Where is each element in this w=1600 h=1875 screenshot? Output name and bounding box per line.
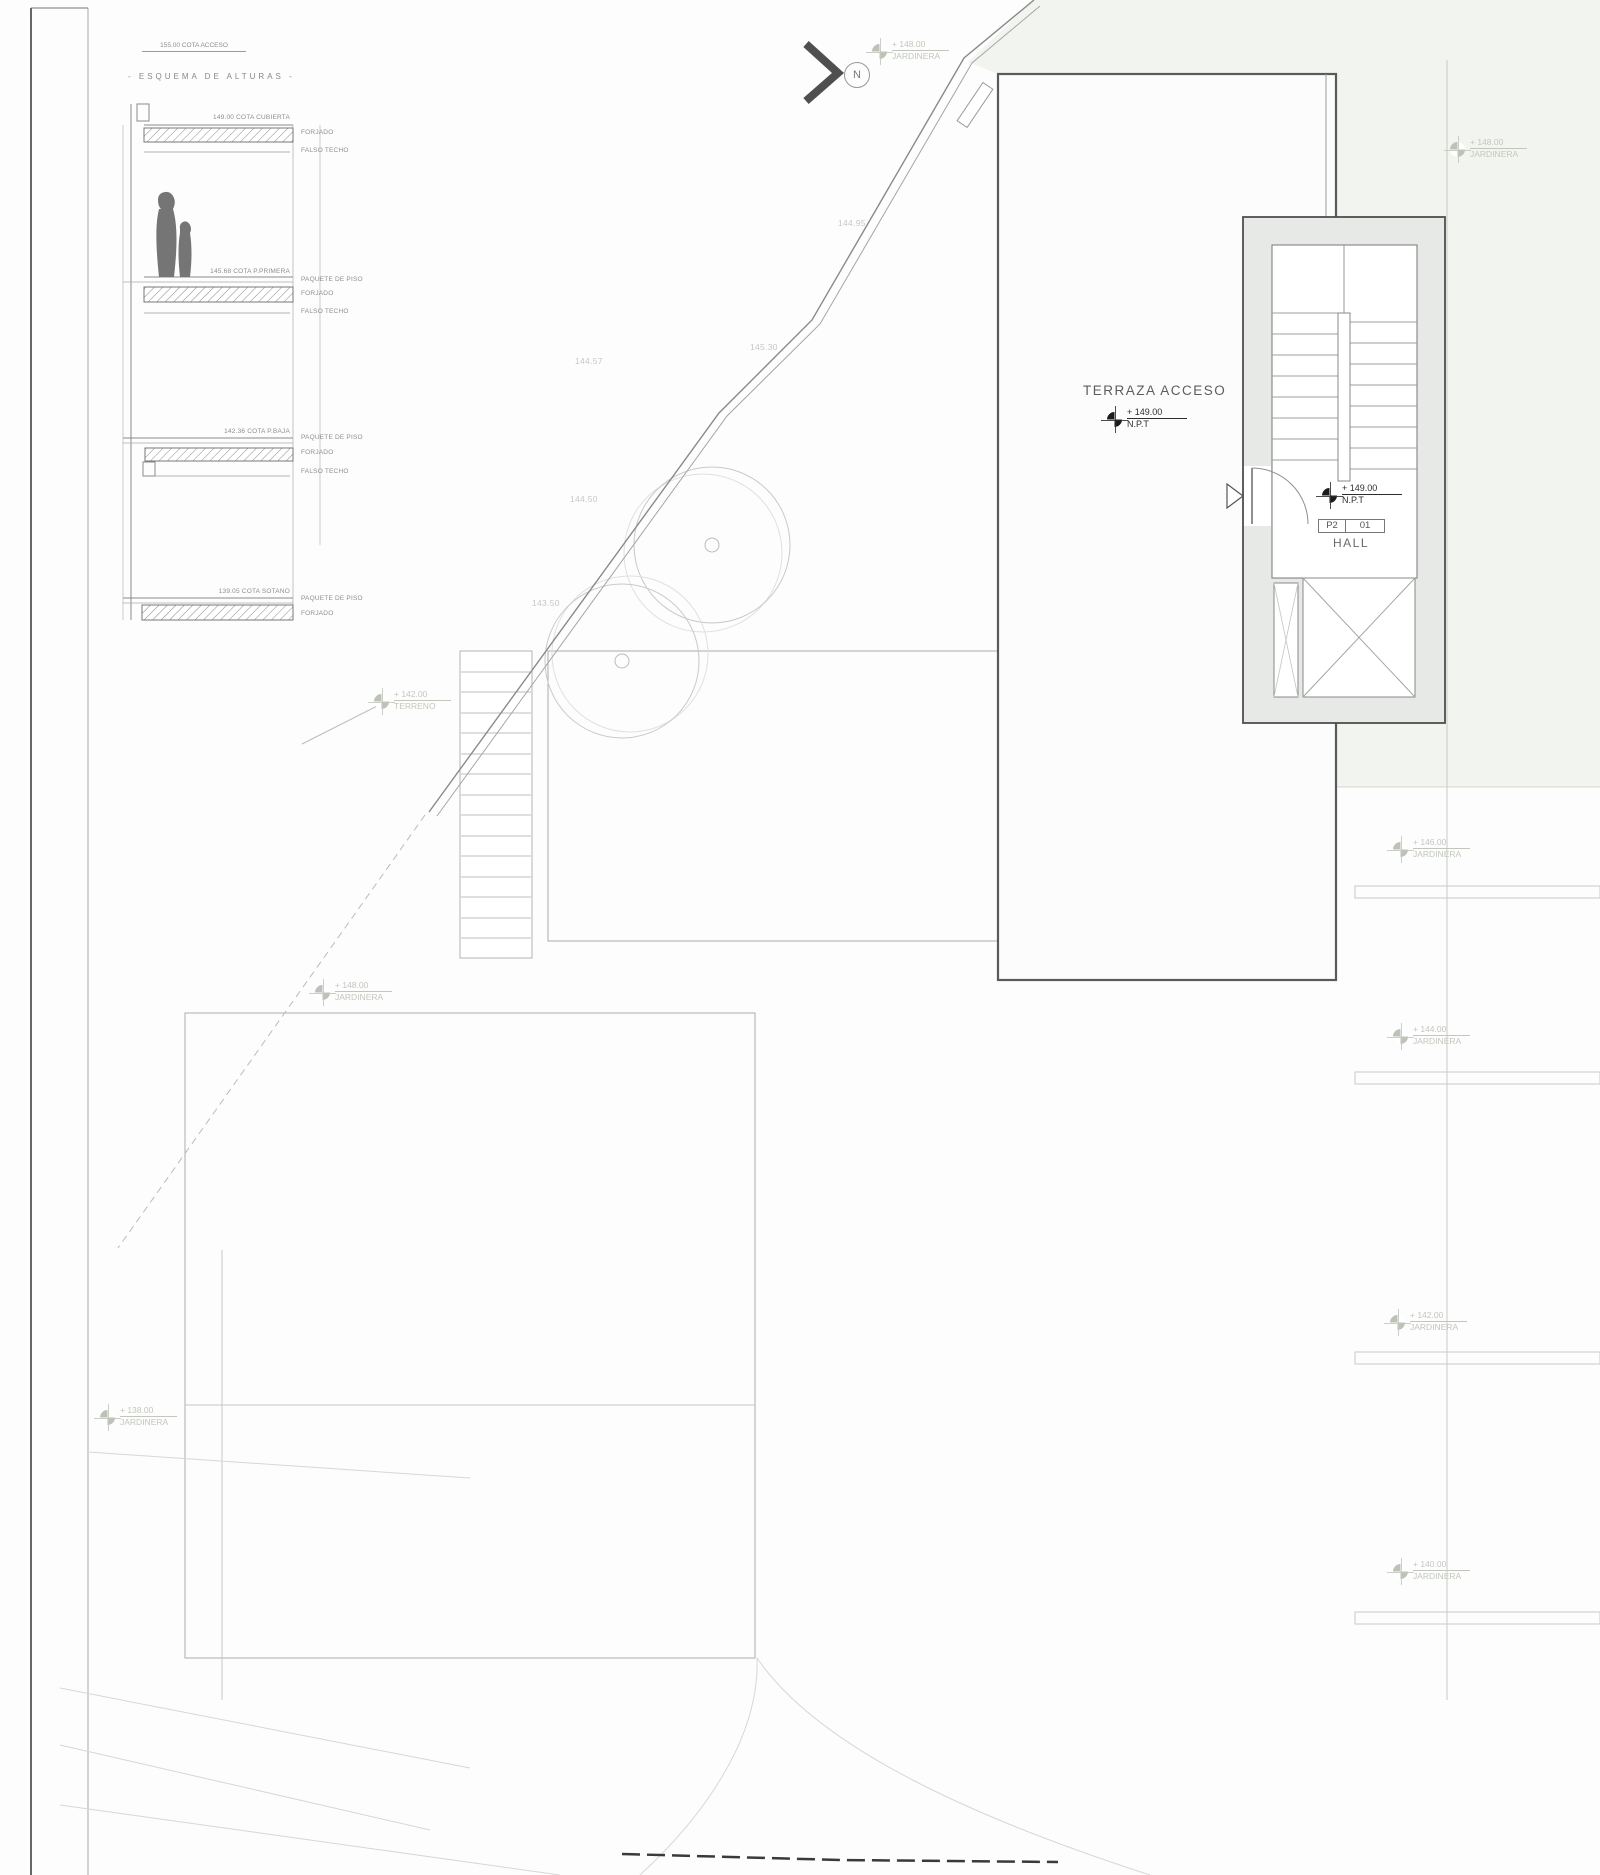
falso-techo-label-1: FALSO TECHO [301, 147, 349, 154]
cota-sotano-label: 139.05 COTA SOTANO [150, 588, 290, 595]
height-scheme-section [123, 104, 320, 620]
plan-linework [0, 0, 1600, 1875]
contour-value: 144.57 [575, 356, 603, 366]
benchmark-icon [1450, 142, 1465, 157]
contour-value: 144.95 [838, 218, 866, 228]
room-name-label: HALL [1318, 536, 1384, 550]
contour-value: 145.30 [750, 342, 778, 352]
benchmark-icon [1393, 1564, 1408, 1579]
benchmark-icon [1393, 1029, 1408, 1044]
benchmark-icon [1393, 842, 1408, 857]
paquete-label-2: PAQUETE DE PISO [301, 434, 363, 441]
cota-baja-label: 142.36 COTA P.BAJA [150, 428, 290, 435]
terrain-contours [60, 1452, 1150, 1875]
room-tag: P2 01 [1318, 519, 1385, 533]
room-tag-floor: P2 [1318, 519, 1345, 533]
benchmark-icon [1107, 412, 1122, 427]
sheet-frame [31, 8, 88, 1875]
paquete-label-3: PAQUETE DE PISO [301, 595, 363, 602]
retaining-wall [118, 0, 1040, 1248]
lower-building-roof [185, 1013, 755, 1700]
benchmark-icon [374, 694, 389, 709]
drawing-sheet: 155.00 COTA ACCESO - ESQUEMA DE ALTURAS … [0, 0, 1600, 1875]
falso-techo-label-2: FALSO TECHO [301, 308, 349, 315]
human-figures [156, 192, 191, 277]
cota-primera-label: 145.68 COTA P.PRIMERA [150, 268, 290, 275]
boundary-dashed-line [622, 1854, 1058, 1862]
scheme-title: - ESQUEMA DE ALTURAS - [128, 72, 295, 81]
benchmark-icon [315, 985, 330, 1000]
stair-core [1227, 217, 1445, 723]
benchmark-icon [1390, 1315, 1405, 1330]
north-arrow-icon [806, 44, 838, 101]
falso-techo-label-3: FALSO TECHO [301, 468, 349, 475]
cota-cubierta-label: 149.00 COTA CUBIERTA [150, 114, 290, 121]
exterior-stair [460, 651, 532, 958]
forjado-label-2: FORJADO [301, 290, 333, 297]
forjado-label-1: FORJADO [301, 129, 333, 136]
forjado-label-3: FORJADO [301, 449, 333, 456]
north-indicator: N [844, 62, 870, 88]
paquete-label-1: PAQUETE DE PISO [301, 276, 363, 283]
room-tag-number: 01 [1345, 519, 1385, 533]
forjado-label-4: FORJADO [301, 610, 333, 617]
benchmark-icon [872, 44, 887, 59]
cota-acceso-note: 155.00 COTA ACCESO [142, 42, 246, 52]
benchmark-icon [1322, 488, 1337, 503]
terraza-acceso-label: TERRAZA ACCESO [1083, 383, 1226, 398]
contour-value: 143.50 [532, 598, 560, 608]
benchmark-icon [100, 1410, 115, 1425]
contour-value: 144.50 [570, 494, 598, 504]
